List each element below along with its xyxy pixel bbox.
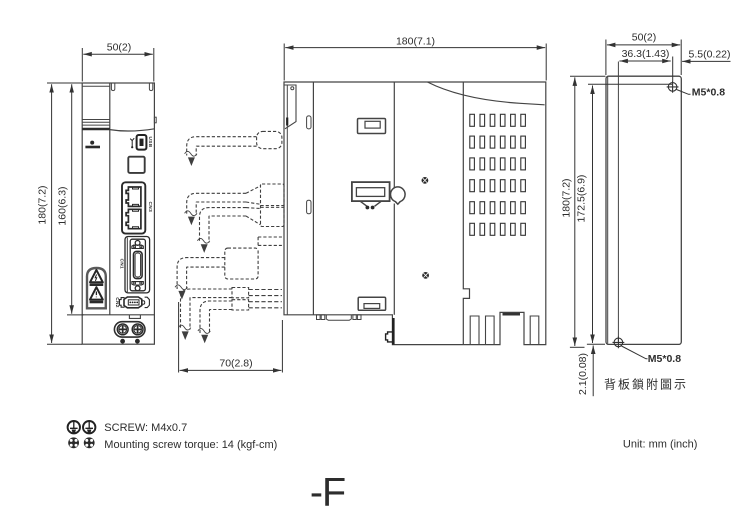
- svg-text:CN3: CN3: [147, 202, 153, 213]
- svg-text:Mounting screw torque: 14 (kgf: Mounting screw torque: 14 (kgf-cm): [104, 439, 277, 451]
- svg-text:Unit: mm (inch): Unit: mm (inch): [623, 438, 698, 450]
- svg-text:180(7.2): 180(7.2): [561, 178, 573, 217]
- svg-text:50(2): 50(2): [107, 42, 132, 54]
- svg-text:M5*0.8: M5*0.8: [692, 86, 725, 98]
- svg-text:USB: USB: [147, 136, 153, 147]
- svg-text:5.5(0.22): 5.5(0.22): [688, 49, 730, 61]
- svg-text:CN2: CN2: [114, 297, 120, 308]
- svg-text:M5*0.8: M5*0.8: [648, 353, 681, 365]
- svg-text:36.3(1.43): 36.3(1.43): [622, 48, 670, 60]
- svg-text:50(2): 50(2): [632, 32, 657, 44]
- svg-text:背板鎖附圖示: 背板鎖附圖示: [604, 377, 688, 392]
- svg-text:172.5(6.9): 172.5(6.9): [576, 175, 588, 223]
- svg-text:SCREW: M4x0.7: SCREW: M4x0.7: [104, 422, 187, 434]
- svg-text:70(2.8): 70(2.8): [219, 358, 252, 370]
- svg-text:160(6.3): 160(6.3): [57, 186, 69, 225]
- svg-text:180(7.1): 180(7.1): [396, 36, 435, 48]
- svg-text:-F: -F: [310, 471, 345, 515]
- svg-text:2.1(0.08): 2.1(0.08): [577, 353, 589, 395]
- svg-text:CN1: CN1: [119, 258, 125, 269]
- svg-text:180(7.2): 180(7.2): [37, 185, 49, 224]
